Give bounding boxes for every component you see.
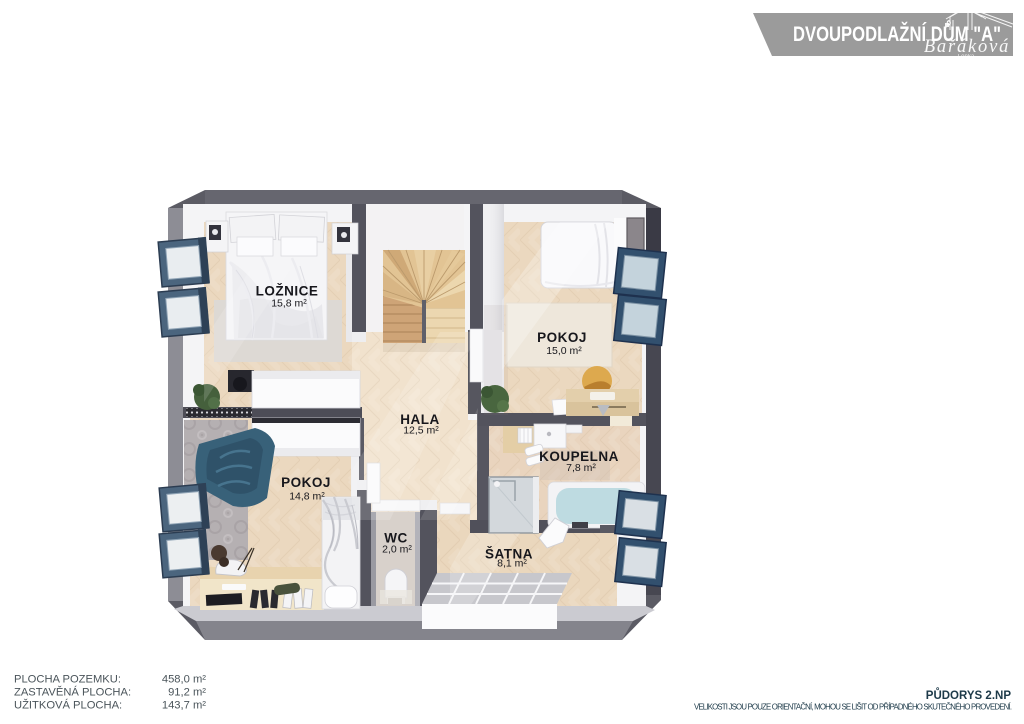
svg-text:POKOJ: POKOJ <box>537 330 587 345</box>
svg-text:14,8 m²: 14,8 m² <box>289 491 325 503</box>
svg-text:7,8 m²: 7,8 m² <box>566 462 596 474</box>
svg-text:91,2 m²: 91,2 m² <box>168 686 206 698</box>
svg-text:143,7 m²: 143,7 m² <box>162 699 206 711</box>
svg-text:POKOJ: POKOJ <box>281 475 331 490</box>
svg-text:PŮDORYS 2.NP: PŮDORYS 2.NP <box>926 688 1012 702</box>
svg-text:LOŽNICE: LOŽNICE <box>256 284 319 299</box>
svg-text:12,5 m²: 12,5 m² <box>403 425 439 437</box>
svg-text:UŽITKOVÁ PLOCHA:: UŽITKOVÁ PLOCHA: <box>14 698 122 711</box>
svg-text:Lenka: Lenka <box>958 54 975 60</box>
svg-text:ZASTAVĚNÁ PLOCHA:: ZASTAVĚNÁ PLOCHA: <box>14 685 131 698</box>
svg-text:VELIKOSTI JSOU POUZE ORIENTAČN: VELIKOSTI JSOU POUZE ORIENTAČNÍ, MOHOU S… <box>694 703 1012 712</box>
svg-text:PLOCHA POZEMKU:: PLOCHA POZEMKU: <box>14 674 121 686</box>
svg-text:2,0 m²: 2,0 m² <box>382 544 412 556</box>
svg-text:458,0 m²: 458,0 m² <box>162 674 206 686</box>
svg-text:15,0 m²: 15,0 m² <box>546 345 582 357</box>
svg-text:8,1 m²: 8,1 m² <box>497 558 527 570</box>
svg-text:15,8 m²: 15,8 m² <box>271 298 307 310</box>
